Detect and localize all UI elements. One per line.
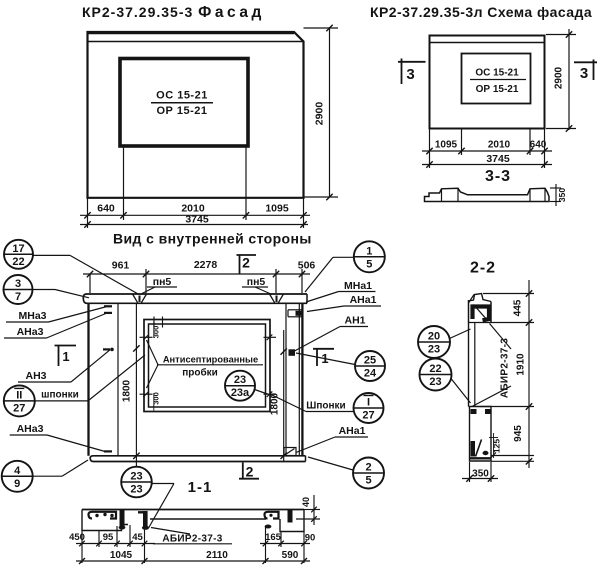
- svg-text:27: 27: [362, 410, 374, 422]
- svg-text:3745: 3745: [486, 153, 510, 165]
- svg-text:23: 23: [130, 471, 142, 483]
- svg-text:350: 350: [557, 188, 567, 202]
- svg-text:МНа3: МНа3: [18, 310, 46, 322]
- svg-text:2: 2: [242, 255, 250, 271]
- svg-text:640: 640: [97, 203, 115, 215]
- svg-text:24: 24: [364, 368, 377, 380]
- svg-text:АНа1: АНа1: [350, 294, 377, 306]
- svg-text:2: 2: [246, 464, 254, 480]
- svg-text:945: 945: [513, 425, 524, 442]
- svg-text:пн5: пн5: [247, 276, 266, 288]
- svg-text:пробки: пробки: [182, 367, 218, 379]
- svg-text:ОР 15-21: ОР 15-21: [156, 105, 207, 117]
- svg-text:МНа1: МНа1: [344, 280, 372, 292]
- svg-text:300: 300: [152, 392, 161, 405]
- svg-text:640: 640: [530, 140, 547, 151]
- svg-text:КР2-37.29.35-3 Фасад: КР2-37.29.35-3 Фасад: [82, 4, 265, 21]
- svg-text:1-1: 1-1: [188, 479, 213, 496]
- svg-text:1095: 1095: [265, 203, 289, 215]
- svg-text:590: 590: [282, 550, 299, 561]
- svg-text:125: 125: [492, 439, 502, 453]
- svg-text:ОР 15-21: ОР 15-21: [476, 84, 519, 95]
- svg-text:9: 9: [14, 478, 20, 490]
- svg-text:2900: 2900: [554, 66, 565, 89]
- svg-text:1: 1: [62, 349, 69, 364]
- svg-text:22: 22: [12, 256, 24, 268]
- svg-text:300: 300: [152, 326, 161, 339]
- svg-text:450: 450: [69, 532, 85, 543]
- svg-text:3-3: 3-3: [485, 168, 511, 185]
- svg-text:1095: 1095: [435, 140, 458, 151]
- svg-text:Вид с внутренней стороны: Вид с внутренней стороны: [113, 231, 312, 247]
- svg-text:5: 5: [366, 258, 372, 270]
- svg-text:пн5: пн5: [153, 276, 172, 288]
- svg-text:22: 22: [429, 363, 441, 375]
- svg-text:2010: 2010: [488, 140, 511, 151]
- svg-text:3: 3: [580, 65, 588, 82]
- svg-text:1: 1: [366, 245, 372, 257]
- svg-text:3: 3: [15, 278, 21, 290]
- svg-text:АН1: АН1: [344, 315, 365, 327]
- svg-text:I: I: [367, 397, 370, 409]
- svg-text:Антисептированные: Антисептированные: [163, 355, 258, 365]
- svg-text:350: 350: [472, 469, 489, 480]
- svg-text:АБИР2-37-3: АБИР2-37-3: [162, 534, 222, 545]
- svg-text:2110: 2110: [206, 550, 228, 561]
- svg-text:4: 4: [14, 465, 21, 477]
- svg-text:23: 23: [428, 344, 440, 356]
- svg-text:90: 90: [305, 533, 316, 544]
- svg-text:23: 23: [234, 374, 246, 386]
- svg-text:23: 23: [130, 484, 142, 496]
- svg-text:ОС 15-21: ОС 15-21: [475, 68, 519, 79]
- svg-text:7: 7: [15, 291, 21, 303]
- svg-text:5: 5: [365, 475, 371, 487]
- svg-text:17: 17: [12, 243, 24, 255]
- svg-text:2: 2: [365, 462, 371, 474]
- svg-text:165: 165: [265, 532, 282, 543]
- svg-text:1910: 1910: [516, 353, 527, 376]
- svg-text:27: 27: [13, 402, 25, 414]
- svg-text:КР2-37.29.35-3л Схема фасада: КР2-37.29.35-3л Схема фасада: [370, 4, 592, 20]
- svg-text:2900: 2900: [314, 102, 326, 126]
- svg-text:АНа3: АНа3: [17, 326, 44, 338]
- svg-text:Шпонки: Шпонки: [306, 401, 345, 412]
- svg-text:20: 20: [428, 331, 440, 343]
- svg-text:25: 25: [364, 355, 376, 367]
- svg-text:шпонки: шпонки: [41, 390, 79, 401]
- svg-text:3: 3: [406, 66, 414, 83]
- svg-text:23: 23: [429, 376, 441, 388]
- svg-text:45: 45: [132, 532, 143, 543]
- svg-text:2278: 2278: [194, 259, 218, 271]
- svg-text:445: 445: [513, 299, 524, 316]
- svg-text:506: 506: [298, 260, 316, 272]
- svg-text:2-2: 2-2: [470, 260, 496, 277]
- svg-text:23а: 23а: [231, 387, 250, 399]
- svg-text:II: II: [16, 389, 22, 401]
- svg-text:ОС 15-21: ОС 15-21: [156, 90, 208, 102]
- svg-text:961: 961: [112, 260, 130, 272]
- svg-text:3745: 3745: [185, 214, 209, 226]
- svg-text:АН3: АН3: [25, 370, 46, 382]
- svg-text:95: 95: [103, 532, 114, 543]
- svg-text:АБИР2-37-3: АБИР2-37-3: [500, 338, 511, 398]
- svg-text:40: 40: [301, 497, 311, 507]
- svg-text:1800: 1800: [122, 379, 133, 402]
- svg-text:АНа3: АНа3: [17, 423, 44, 435]
- svg-text:АНа1: АНа1: [339, 425, 366, 437]
- svg-text:1045: 1045: [110, 550, 133, 561]
